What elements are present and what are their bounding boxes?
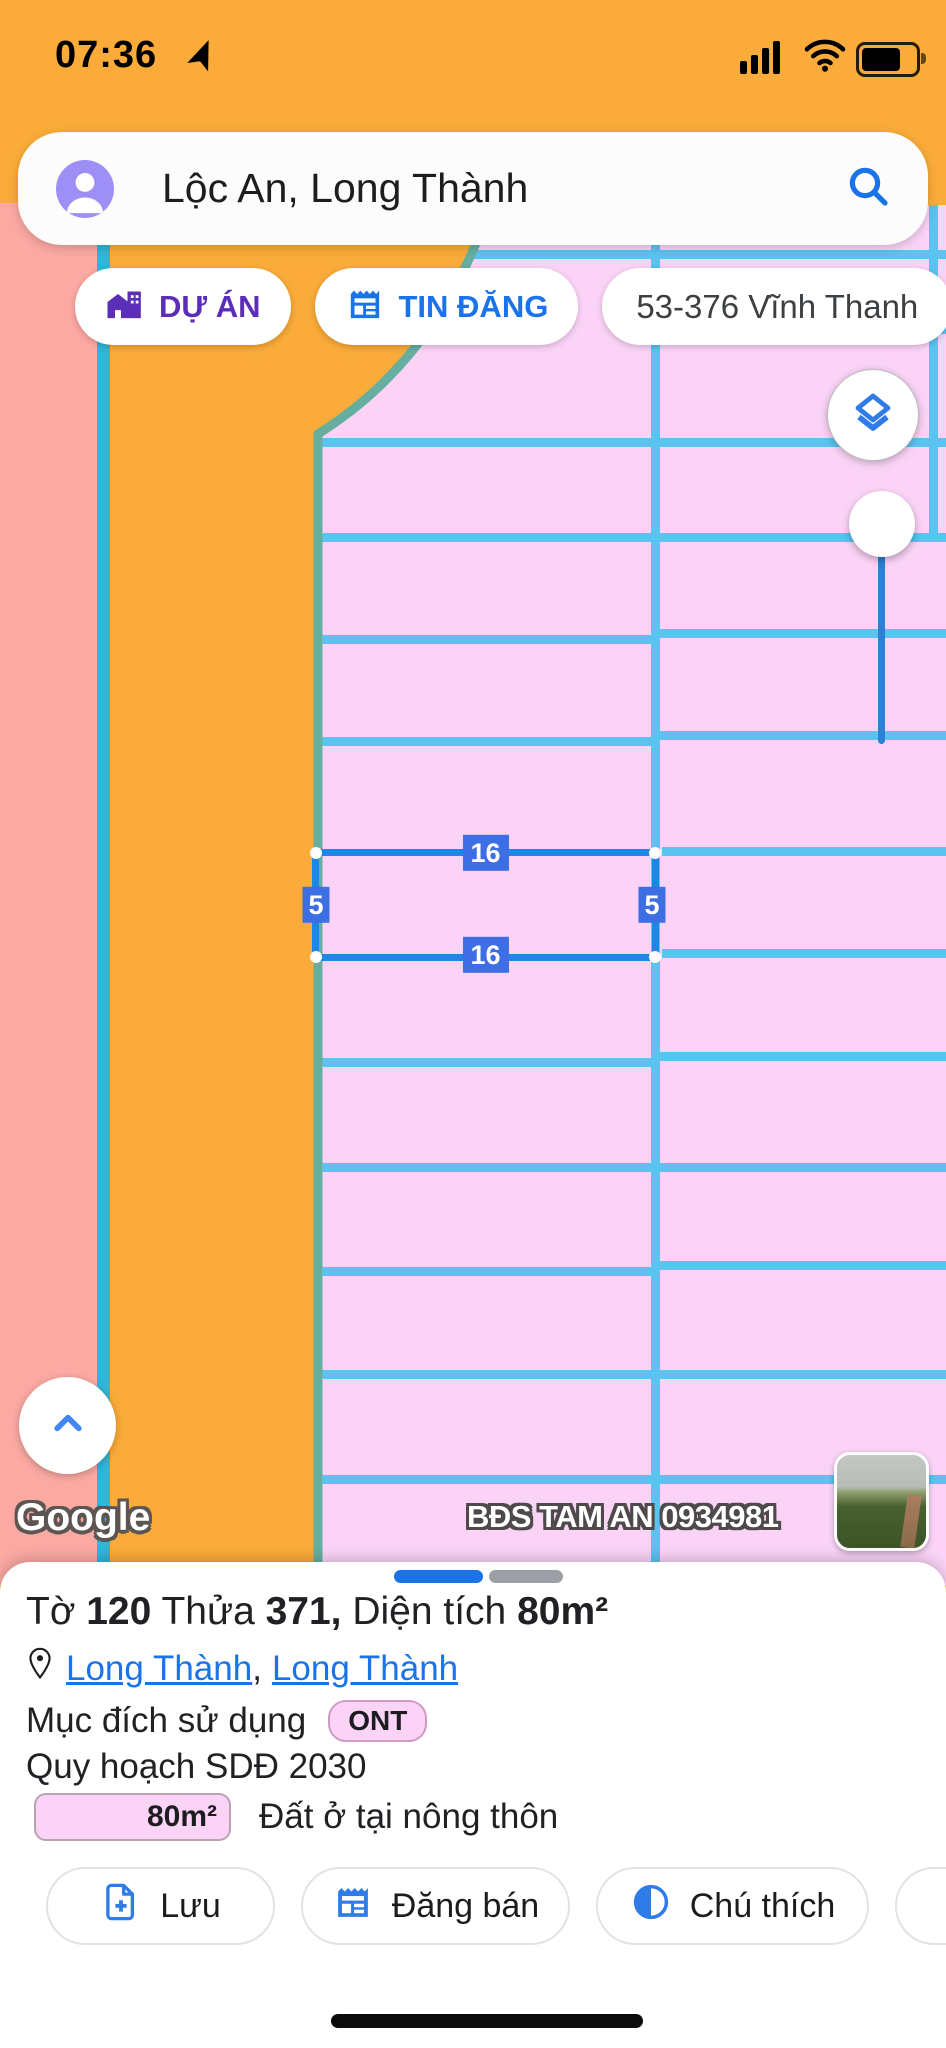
parcel-bottom-sheet[interactable]: Tờ 120 Thửa 371, Diện tích 80m² Long Thà… [0, 1562, 946, 2048]
add-photo-button[interactable] [895, 1867, 946, 1945]
area-badge: 80m² [34, 1793, 231, 1841]
sell-button-label: Đăng bán [392, 1887, 539, 1926]
parcel-corner-dot [649, 951, 661, 963]
page-indicator-active [394, 1570, 483, 1583]
parcel-corner-dot [310, 951, 322, 963]
project-buildings-icon [105, 284, 145, 329]
measure-label-top: 16 [462, 835, 508, 871]
map-grid-line [658, 629, 946, 638]
cellular-signal-icon [740, 40, 780, 74]
location-link-province[interactable]: Long Thành [272, 1649, 458, 1689]
save-button[interactable]: Lưu [46, 1867, 275, 1945]
filter-chip-row: DỰ ÁN TIN ĐĂNG 53-376 Vĩnh Thanh [75, 268, 946, 345]
collapse-up-button[interactable] [19, 1377, 116, 1474]
avatar[interactable] [56, 160, 114, 218]
chip-address-label: 53-376 Vĩnh Thanh [636, 288, 918, 326]
chip-address[interactable]: 53-376 Vĩnh Thanh [602, 268, 946, 345]
area-description: Đất ở tại nông thôn [259, 1797, 558, 1837]
search-input[interactable]: Lộc An, Long Thành [162, 165, 844, 212]
planning-label: Quy hoạch SDĐ 2030 [26, 1747, 366, 1787]
parcel-corner-dot [310, 847, 322, 859]
legend-button[interactable]: Chú thích [596, 1867, 869, 1945]
chip-tin-dang[interactable]: TIN ĐĂNG [315, 268, 579, 345]
chip-du-an-label: DỰ ÁN [159, 289, 261, 325]
wifi-icon [802, 36, 848, 79]
measure-label-left: 5 [302, 887, 329, 923]
chip-tin-dang-label: TIN ĐĂNG [399, 289, 549, 325]
selected-parcel[interactable]: 16 16 5 5 [312, 849, 659, 961]
contrast-icon [630, 1881, 672, 1932]
map-grid-line [662, 949, 946, 958]
app-screen: 16 16 5 5 Google BĐS TAM AN 0934981 07:3… [0, 0, 946, 2048]
legend-button-label: Chú thích [690, 1887, 836, 1926]
map-grid-line [662, 847, 946, 856]
zoom-slider-handle[interactable] [849, 491, 915, 557]
search-icon[interactable] [844, 162, 892, 215]
parcel-corner-dot [649, 847, 661, 859]
measure-label-bottom: 16 [462, 937, 508, 973]
file-plus-icon [100, 1881, 142, 1932]
zoom-slider-track [878, 536, 885, 744]
sell-newspaper-icon [332, 1881, 374, 1932]
map-watermark: BĐS TAM AN 0934981 [467, 1499, 778, 1535]
area-row: 80m² Đất ở tại nông thôn [34, 1793, 558, 1841]
google-attribution-logo: Google [16, 1496, 150, 1540]
map-grid-line [929, 205, 938, 535]
parcel-photo-thumbnail[interactable] [834, 1452, 929, 1551]
parcel-title: Tờ 120 Thửa 371, Diện tích 80m² [26, 1590, 608, 1634]
page-indicator-inactive [489, 1570, 563, 1583]
purpose-code-badge: ONT [328, 1700, 427, 1742]
action-button-row: Lưu Đăng bán [46, 1867, 946, 1945]
location-link-district[interactable]: Long Thành [66, 1649, 252, 1689]
status-time: 07:36 [55, 34, 157, 77]
search-bar[interactable]: Lộc An, Long Thành [18, 132, 928, 245]
purpose-row: Mục đích sử dụng ONT [26, 1700, 427, 1742]
status-bar: 07:36 [0, 0, 946, 100]
listing-newspaper-icon [345, 284, 385, 329]
map-grid-line [658, 1052, 946, 1061]
home-indicator [331, 2014, 643, 2028]
layers-button[interactable] [827, 369, 919, 461]
location-arrow-icon [185, 36, 221, 77]
battery-icon [856, 42, 920, 77]
layers-icon [849, 389, 897, 442]
measure-label-right: 5 [638, 887, 665, 923]
map-grid-line [658, 731, 946, 740]
map-pin-icon [26, 1646, 66, 1691]
chevron-up-icon [42, 1397, 94, 1454]
map-grid-line [658, 1261, 946, 1270]
sell-button[interactable]: Đăng bán [301, 1867, 570, 1945]
purpose-label: Mục đích sử dụng [26, 1701, 306, 1741]
chip-du-an[interactable]: DỰ ÁN [75, 268, 291, 345]
save-button-label: Lưu [160, 1887, 221, 1926]
location-separator: , [252, 1649, 262, 1689]
location-row: Long Thành , Long Thành [26, 1646, 458, 1691]
